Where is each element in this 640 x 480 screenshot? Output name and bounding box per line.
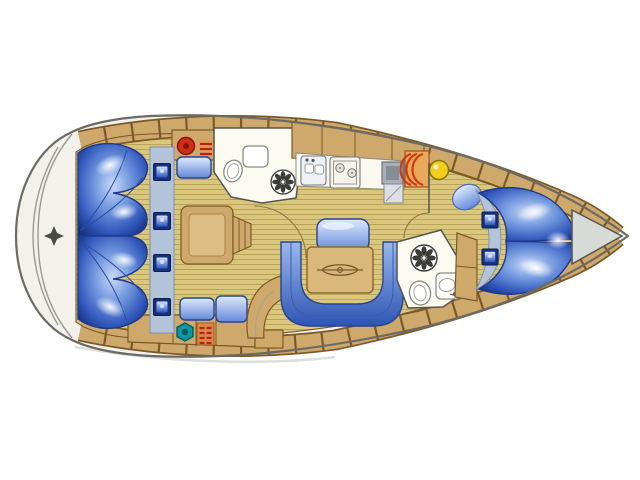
hatch-window [482, 212, 498, 228]
galley-sink-icon [301, 156, 326, 185]
vent-grate-top [198, 139, 214, 157]
wardrobe [455, 233, 477, 301]
teal-fitting-center [182, 329, 188, 335]
red-fitting-center [183, 143, 189, 149]
toilet-icon-aft [243, 146, 268, 167]
heater-icon [400, 151, 429, 187]
hatch-window [154, 213, 171, 230]
vent-grate-bottom [197, 323, 214, 345]
stove-icon [330, 157, 360, 188]
hatch-strip [150, 147, 174, 333]
aft-seat-cushion-stbd-2 [216, 296, 247, 322]
shower-fan-icon-forward [411, 245, 437, 271]
berth-highlight [546, 231, 570, 249]
aft-seat-cushion-stbd-1 [180, 298, 214, 320]
hatch-window [482, 249, 498, 265]
shower-fan-icon-aft [271, 170, 295, 194]
hatch-window [154, 255, 171, 272]
aft-seat-cushion-port [177, 157, 211, 178]
yacht-floor-plan-canvas [0, 0, 640, 480]
hatch-window [154, 299, 171, 316]
hatch-window [154, 164, 171, 181]
yellow-fitting-icon [430, 161, 449, 180]
cushion-highlight [322, 222, 354, 230]
yacht-floor-plan [0, 0, 640, 480]
aft-head [214, 128, 301, 203]
